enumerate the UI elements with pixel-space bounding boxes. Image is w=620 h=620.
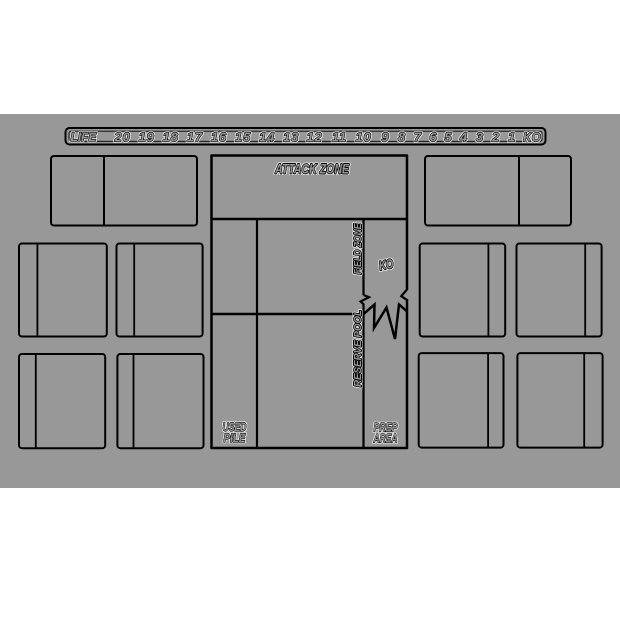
svg-text:2: 2 (491, 129, 500, 144)
svg-text:20: 20 (113, 129, 130, 144)
svg-text:7: 7 (414, 129, 422, 144)
svg-text:KO: KO (377, 256, 394, 274)
svg-text:1: 1 (508, 129, 515, 144)
svg-text:LIFE: LIFE (71, 130, 98, 144)
svg-text:8: 8 (398, 129, 406, 144)
svg-text:RESERVE POOL: RESERVE POOL (352, 310, 364, 387)
svg-text:14: 14 (259, 129, 275, 144)
svg-text:19: 19 (139, 129, 155, 144)
svg-text:17: 17 (187, 129, 203, 144)
svg-text:AREA: AREA (373, 432, 398, 446)
svg-text:PILE: PILE (224, 431, 247, 445)
svg-text:12: 12 (306, 129, 322, 144)
svg-text:10: 10 (355, 129, 371, 144)
svg-text:15: 15 (235, 129, 251, 144)
svg-text:11: 11 (332, 129, 347, 144)
svg-text:18: 18 (163, 129, 179, 144)
svg-text:4: 4 (459, 129, 468, 144)
svg-text:KO: KO (523, 129, 541, 144)
svg-text:3: 3 (476, 129, 484, 144)
svg-text:9: 9 (381, 129, 389, 144)
svg-text:16: 16 (211, 129, 227, 144)
svg-text:FIELD ZONE: FIELD ZONE (352, 223, 364, 275)
svg-text:5: 5 (444, 129, 452, 144)
svg-text:6: 6 (429, 129, 437, 144)
svg-text:13: 13 (283, 129, 299, 144)
svg-text:ATTACK ZONE: ATTACK ZONE (274, 161, 349, 177)
